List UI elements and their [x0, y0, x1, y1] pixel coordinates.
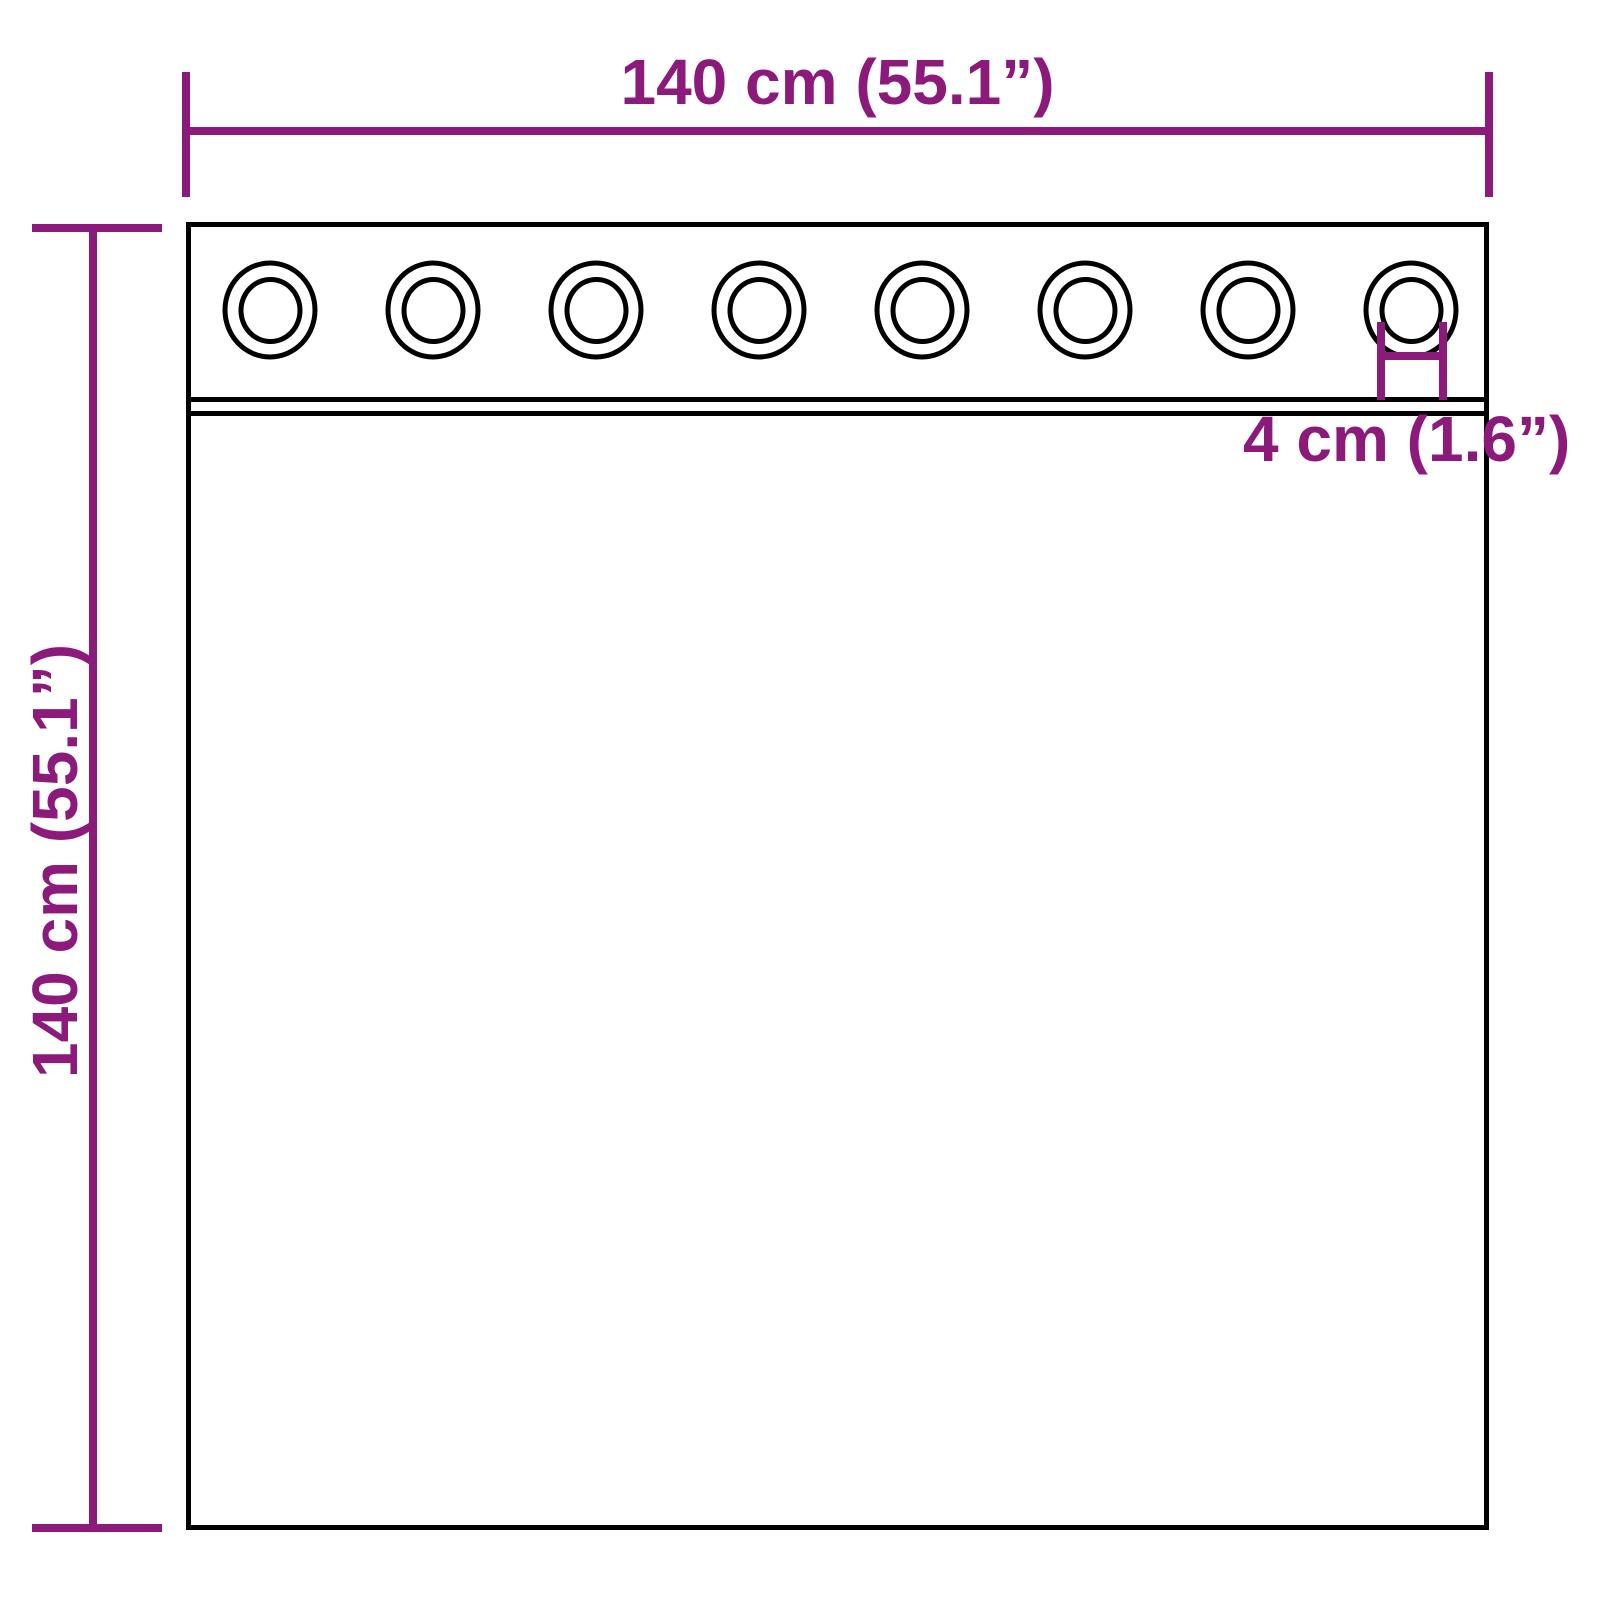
height-dimension-tick-bottom [32, 1524, 162, 1532]
grommet-eyelet [1038, 261, 1133, 360]
grommet-eyelet [712, 261, 807, 360]
grommet-eyelet-inner-ring [1379, 277, 1443, 344]
grommet-diameter-bracket-left [1377, 322, 1385, 400]
grommet-eyelet [875, 261, 970, 360]
height-dimension-label-box: 140 cm (55.1”) [19, 642, 91, 1078]
grommet-eyelet-inner-ring [564, 277, 628, 344]
height-dimension-tick-top [32, 224, 162, 232]
grommet-eyelet-inner-ring [727, 277, 791, 344]
grommet-eyelet [223, 261, 318, 360]
curtain-dimension-diagram: 140 cm (55.1”) 140 cm (55.1”) 4 cm (1.6”… [0, 0, 1600, 1600]
grommet-diameter-label: 4 cm (1.6”) [1243, 407, 1570, 471]
grommet-diameter-bracket-right [1439, 322, 1447, 400]
grommet-eyelet-inner-ring [1053, 277, 1117, 344]
grommet-eyelet [1201, 261, 1296, 360]
width-dimension-label: 140 cm (55.1”) [186, 46, 1489, 118]
height-dimension-label: 140 cm (55.1”) [19, 644, 91, 1078]
grommet-eyelet [386, 261, 481, 360]
grommet-eyelet-inner-ring [1216, 277, 1280, 344]
grommet-eyelet-inner-ring [890, 277, 954, 344]
grommet-eyelet-inner-ring [401, 277, 465, 344]
grommet-diameter-bracket-connector [1377, 352, 1447, 360]
header-stitch-line-top [191, 397, 1484, 402]
width-dimension-line [186, 127, 1489, 135]
grommet-eyelet-inner-ring [238, 277, 302, 344]
grommet-eyelet [549, 261, 644, 360]
